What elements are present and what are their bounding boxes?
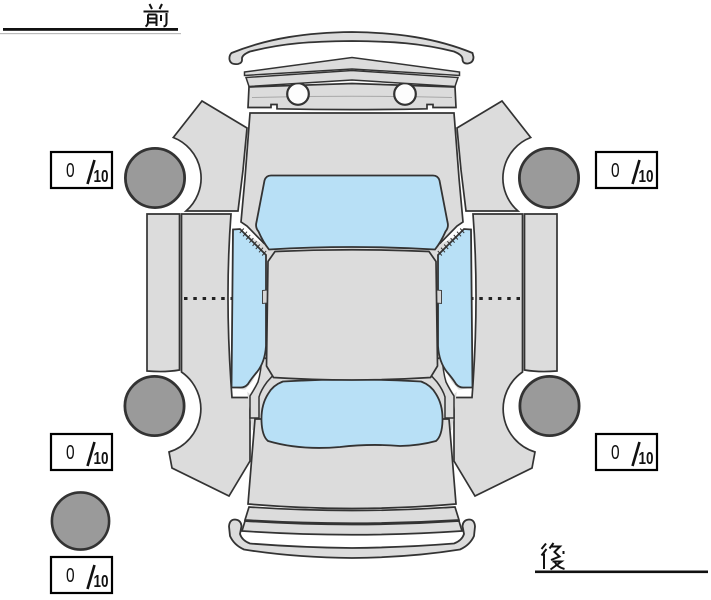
svg-text:10: 10 xyxy=(94,571,109,591)
svg-text:0: 0 xyxy=(66,564,75,587)
svg-text:0: 0 xyxy=(611,441,620,464)
svg-text:0: 0 xyxy=(66,159,75,182)
svg-text:10: 10 xyxy=(94,448,109,468)
svg-text:10: 10 xyxy=(639,166,654,186)
svg-text:0: 0 xyxy=(66,441,75,464)
svg-text:10: 10 xyxy=(94,166,109,186)
svg-text:10: 10 xyxy=(639,448,654,468)
svg-text:0: 0 xyxy=(611,159,620,182)
